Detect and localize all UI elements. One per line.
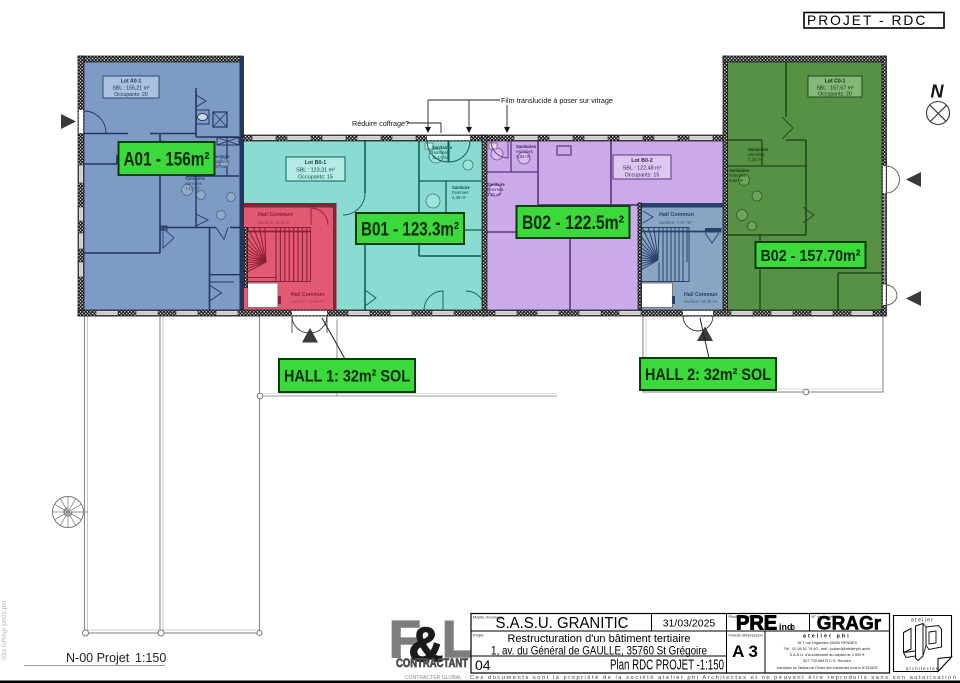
svg-text:HALL 2: 32m² SOL: HALL 2: 32m² SOL	[645, 365, 771, 384]
svg-text:B02 - 122.5m²: B02 - 122.5m²	[522, 213, 624, 234]
svg-text:Surface: 7,37 m²: Surface: 7,37 m²	[659, 220, 692, 225]
svg-text:S.A.S.U. GRANITIC: S.A.S.U. GRANITIC	[496, 615, 629, 632]
svg-text:B02 - 157.70m²: B02 - 157.70m²	[761, 248, 861, 265]
svg-text:GRAGr: GRAGr	[817, 614, 882, 635]
svg-text:Lot B0-2: Lot B0-2	[631, 158, 653, 164]
svg-text:Réduire coffrage?: Réduire coffrage?	[352, 119, 409, 128]
svg-text:Hall Commun: Hall Commun	[684, 292, 717, 298]
svg-text:4,38 m²: 4,38 m²	[452, 195, 467, 200]
svg-text:Tél : 02 99 51 79 40 - mél : p: Tél : 02 99 51 79 40 - mél : pollard@ate…	[784, 647, 871, 651]
svg-text:N: N	[931, 82, 945, 102]
svg-text:5,92 m²: 5,92 m²	[729, 178, 744, 183]
svg-text:PRE: PRE	[736, 613, 777, 635]
svg-text:Lot A0-1: Lot A0-1	[121, 79, 142, 85]
svg-text:Occupants: 15: Occupants: 15	[298, 175, 333, 181]
svg-text:atelier phi: atelier phi	[803, 634, 851, 640]
svg-text:HALL 1: 32m² SOL: HALL 1: 32m² SOL	[284, 367, 410, 386]
svg-text:Inscription au Tableau de l'Or: Inscription au Tableau de l'Ordre des Ar…	[777, 666, 878, 670]
svg-text:S.A.S.U. d'Architecture au cap: S.A.S.U. d'Architecture au capital de 2 …	[789, 653, 865, 657]
svg-text:1:150: 1:150	[135, 651, 166, 665]
svg-text:B01 - 123.3m²: B01 - 123.3m²	[361, 219, 459, 240]
svg-text:Format d'impression: Format d'impression	[729, 634, 763, 638]
svg-text:827 730 668 R.C.S. Rennes: 827 730 668 R.C.S. Rennes	[803, 659, 851, 663]
svg-text:Surface: 19,06 m²: Surface: 19,06 m²	[684, 299, 718, 304]
svg-text:0: 0	[791, 625, 795, 632]
svg-text:03a GRAgr ph01.pln: 03a GRAgr ph01.pln	[1, 600, 8, 660]
svg-text:SBL : 122,48 m²: SBL : 122,48 m²	[623, 166, 662, 172]
svg-text:3,82 m²: 3,82 m²	[487, 192, 502, 197]
svg-text:04: 04	[475, 657, 491, 673]
svg-text:Lot B0-1: Lot B0-1	[305, 160, 327, 166]
svg-text:7,10 m²: 7,10 m²	[748, 157, 763, 162]
svg-text:Hall Commun: Hall Commun	[659, 212, 694, 218]
svg-text:N-00 Projet: N-00 Projet	[66, 651, 130, 665]
svg-text:CONTRACTANT: CONTRACTANT	[396, 658, 468, 670]
svg-text:A01 - 156m²: A01 - 156m²	[124, 149, 210, 170]
svg-text:a r c h i t e c t e s: a r c h i t e c t e s	[906, 666, 938, 671]
svg-text:SBL : 123,31 m²: SBL : 123,31 m²	[296, 168, 335, 174]
svg-text:Hall Commun: Hall Commun	[258, 212, 293, 218]
svg-text:7,17 m²: 7,17 m²	[185, 186, 200, 191]
svg-text:Surface: 13,04 m²: Surface: 13,04 m²	[291, 299, 325, 304]
svg-text:CONTRACTER GLOBAL: CONTRACTER GLOBAL	[405, 675, 462, 681]
svg-text:Projet :: Projet :	[473, 633, 486, 638]
svg-text:Ces documents sont la propriét: Ces documents sont la propriété de la so…	[470, 675, 956, 681]
svg-text:a t e l i e r: a t e l i e r	[911, 618, 933, 624]
svg-text:Film translucide à poser sur v: Film translucide à poser sur vitrage	[501, 96, 613, 105]
svg-text:Hall Commun: Hall Commun	[291, 292, 324, 298]
svg-text:4,34 m²: 4,34 m²	[516, 154, 531, 159]
svg-text:SBL : 156,21 m²: SBL : 156,21 m²	[112, 86, 150, 92]
svg-text:Lot C0-1: Lot C0-1	[825, 79, 846, 85]
svg-text:1, av. du Général de GAULLE, 3: 1, av. du Général de GAULLE, 35760 St Gr…	[491, 644, 707, 658]
svg-text:A 3: A 3	[732, 642, 758, 661]
svg-text:16 T rue Urgandes 35000 RENNES: 16 T rue Urgandes 35000 RENNES	[797, 641, 857, 645]
svg-text:Occupants: 20: Occupants: 20	[114, 92, 148, 98]
svg-text:Occupants: 20: Occupants: 20	[818, 92, 852, 98]
svg-text:Plan RDC PROJET -1:150: Plan RDC PROJET -1:150	[610, 658, 724, 674]
svg-text:PROJET - RDC: PROJET - RDC	[807, 13, 927, 28]
svg-text:Surface: 8,03 m²: Surface: 8,03 m²	[258, 220, 291, 225]
svg-text:31/03/2025: 31/03/2025	[663, 618, 716, 630]
svg-text:Occupants: 15: Occupants: 15	[625, 173, 660, 179]
